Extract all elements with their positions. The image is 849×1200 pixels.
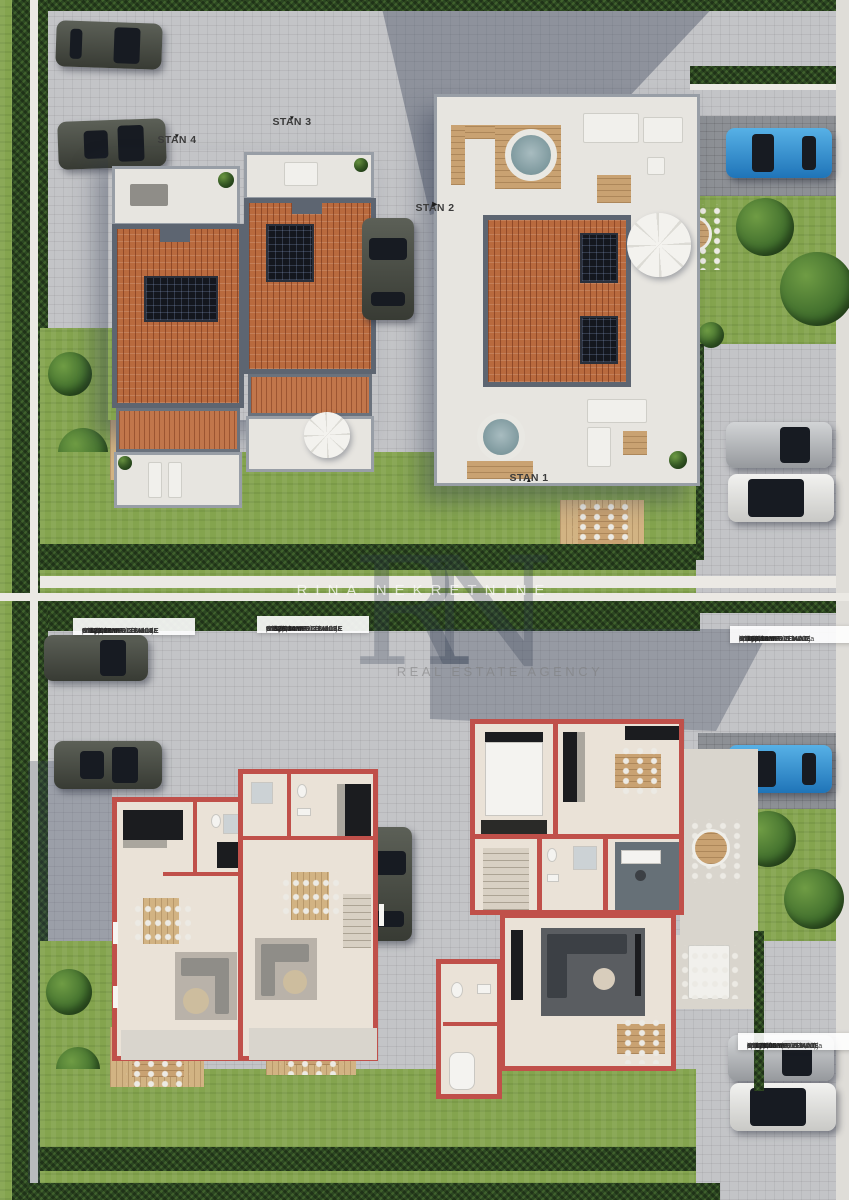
tree [736,198,794,256]
car-windshield [113,27,140,64]
staircase [343,894,371,948]
grass-strip-left [0,0,12,593]
lounge-sofa [643,117,683,143]
label-stan4-arrow: ▼ [174,134,181,140]
building-right [434,94,700,486]
kitchen-counter [577,732,585,802]
car-rear-window [802,136,816,170]
car-windshield [748,479,804,517]
wardrobe [511,930,523,1000]
interior-wall [603,836,608,916]
hot-tub [505,129,557,181]
coffee-table [623,431,647,455]
round-rug [283,970,307,994]
hedge-right-upper [690,66,836,84]
interior-wall [193,802,197,876]
total-row-value: 168,18 m² [747,634,779,645]
total-row-value: 171,05 m² [755,1041,787,1052]
coffee-table [597,175,631,203]
watermark-subtitle: REAL ESTATE AGENCY [300,664,700,679]
dining-chairs [279,872,341,920]
patio-umbrella-large [627,213,691,277]
lounge-sofa [583,113,639,143]
window-gap [379,904,384,926]
hot-tub-lower [477,413,525,461]
floorplan-lower-block [500,913,676,1071]
window-gap [113,922,118,944]
terrace-plant [669,451,687,469]
wall-left [30,601,38,1200]
hedge-top [48,0,836,11]
desk [621,850,661,864]
floorplan-stan3 [238,769,378,1061]
top-aerial-view: STAN 4 ▼ STAN 3 ▼ STAN 2 ▶ STAN 1 ▲ [0,0,849,593]
roof-notch [160,224,190,242]
deck-plant [218,172,234,188]
sofa [215,958,229,1014]
toilet [451,982,463,998]
sun-lounger [148,462,162,498]
sink [547,874,559,882]
solar-panel [580,316,618,364]
car-white [728,474,834,522]
toilet [297,784,307,798]
tree [784,869,844,929]
car-windshield [752,134,774,172]
deck-plant [354,158,368,172]
hedge-top-right [700,601,836,613]
tree [48,352,92,396]
wall-left [30,0,38,593]
kitchen-counter [123,840,167,848]
deck-furniture [284,162,318,186]
car-silver [726,422,832,468]
car-sunroof [84,130,109,159]
interior-wall [553,724,558,834]
shower [573,846,597,870]
hedge-bottom-row [40,1147,696,1171]
interior-wall [475,834,681,839]
dining-chairs [615,744,661,798]
car-parked-1 [44,635,148,681]
toilet [547,848,557,862]
car-sunroof [80,751,104,779]
solar-panel [580,233,618,283]
interior-wall [443,1022,497,1026]
deck-furniture [130,184,168,206]
hedge-left [12,0,30,593]
floorplan-upper-block [470,719,684,915]
terrace-plant [118,456,132,470]
kitchen-counter [345,784,371,838]
sink [477,984,491,994]
floorplan-right-building [436,713,762,1105]
floorplan-brochure-image: STAN 4 ▼ STAN 3 ▼ STAN 2 ▶ STAN 1 ▲ [0,0,849,1200]
interior-wall [243,836,373,840]
area-table-stan4: STAN 4 - PRIZEMLJEdnevni boravak i kuhin… [73,618,195,635]
dining-chairs [131,898,191,944]
toilet [211,814,221,828]
tree [780,252,849,326]
lower-roof-stan3 [248,374,372,416]
lounge-sofa [587,399,647,423]
car-rear-window [371,292,405,306]
tv-unit [635,934,641,996]
watermark-title: RINA NEKRETNINE [0,582,849,599]
sofa [547,934,567,998]
kitchen-counter [563,732,577,802]
wall-right-upper [690,84,836,90]
car-parked-1 [55,20,163,70]
office-chair [635,870,646,881]
pouf [647,157,665,175]
car-windshield [369,238,407,260]
staircase [483,848,529,910]
car-rear-window [70,29,83,59]
car-rear-window [802,753,816,785]
car-driveway [362,218,414,320]
lounge-sofa [587,427,611,467]
sink [297,808,311,816]
ground-terrace [121,1030,243,1060]
wardrobe [625,726,679,740]
total-row-value: 126,34 m² [274,624,306,635]
label-stan2-arrow: ▶ [432,202,437,208]
area-table-stan2: STAN 2 - PRVI KATdnevni boravak i kuhinj… [730,626,849,643]
bedroom-rug [481,820,547,834]
ground-terrace [249,1028,377,1060]
total-row-value: 122,27 m² [90,626,122,637]
building-left-duplex [108,150,378,420]
lower-roof-stan4 [116,408,240,452]
shower [251,782,273,804]
interior-wall [163,872,245,876]
area-table-stan1: STAN 1 - PRVI KATdnevni boravak i kuhinj… [738,1033,849,1050]
floorplan-stan4 [112,797,246,1061]
kitchen-counter [123,810,183,840]
tree [46,969,92,1015]
roof-notch [292,198,322,214]
label-stan3-arrow: ▼ [289,116,296,122]
hedge-bottom-edge [28,1183,720,1200]
bathtub [449,1052,475,1090]
hedge-left [12,601,30,1200]
car-windshield [100,640,126,676]
coffee-table [593,968,615,990]
kitchen-counter [337,784,345,838]
dining-chairs [617,1016,665,1064]
interior-wall [287,774,291,838]
grass-strip-left [0,601,12,1200]
car-blue [726,128,832,178]
car-windshield [780,427,810,463]
headboard [485,732,543,742]
round-rug [183,988,209,1014]
label-stan1-arrow: ▲ [526,478,533,484]
sun-lounger [168,462,182,498]
outdoor-counter [451,125,465,185]
bed [485,742,543,816]
interior-wall [537,836,542,916]
patio-umbrella [304,412,350,458]
solar-panel [144,276,218,322]
sofa [261,944,275,996]
floorplan-annex [436,959,502,1099]
floorplan-left-duplex [110,769,378,1065]
window-gap [113,986,118,1008]
solar-panel [266,224,314,282]
